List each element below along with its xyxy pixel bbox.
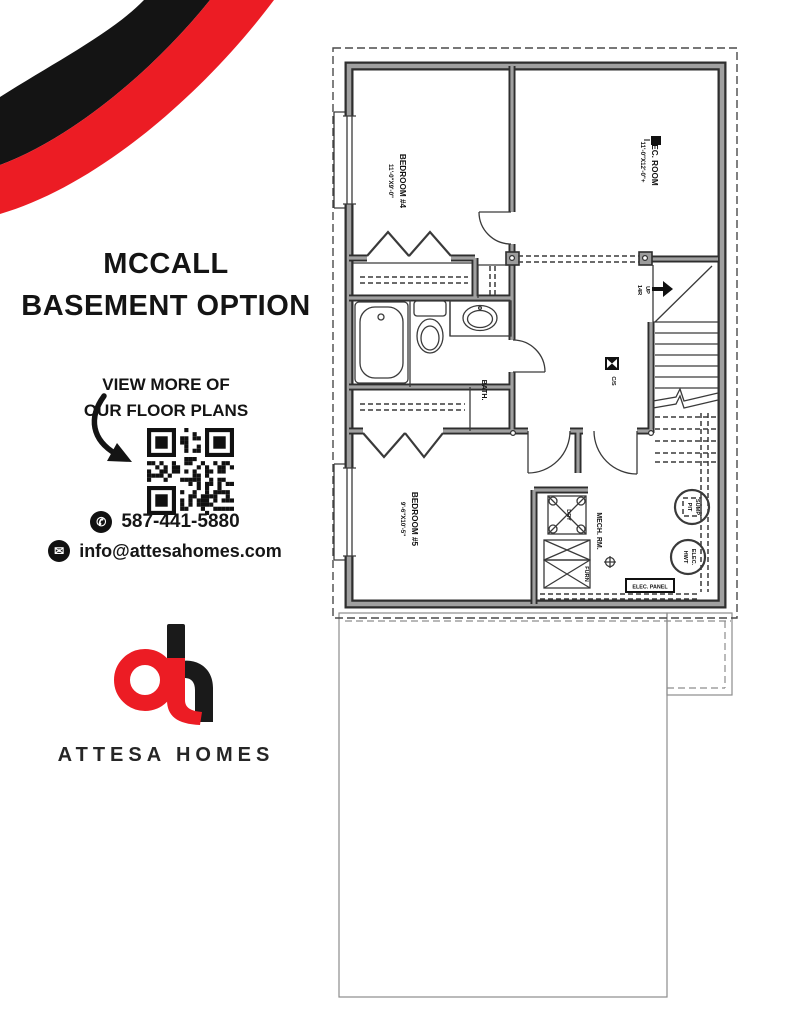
- room-labels: BEDROOM #4 11'-0"X9'-0" REC. ROOM 11'-0"…: [387, 138, 659, 549]
- bathtub: [355, 302, 408, 383]
- rec-room-dims: 11'-0"X12'-0"+: [639, 142, 646, 183]
- stairs-up-label: UP: [644, 286, 650, 294]
- header-beam-dashed: [518, 256, 639, 262]
- window-bedroom4: [343, 116, 356, 204]
- sump-label-2: PIT: [686, 503, 692, 512]
- bathroom: [355, 300, 545, 387]
- sump-pit: SUMP PIT: [675, 490, 709, 524]
- smoke-co-detector: C/S: [605, 357, 619, 386]
- bedroom5-name: BEDROOM #5: [410, 492, 419, 547]
- info-column: MCCALL BASEMENT OPTION VIEW MORE OF OUR …: [0, 0, 330, 1024]
- page-title: MCCALL BASEMENT OPTION: [10, 243, 322, 327]
- bedroom4-dims: 11'-0"X9'-0": [387, 164, 394, 198]
- window-bedroom5: [343, 468, 356, 556]
- toilet: [414, 301, 446, 353]
- elec-panel-label: ELEC. PANEL: [632, 585, 668, 591]
- rec-room-name: REC. ROOM: [650, 138, 659, 185]
- garage-outline: [339, 613, 732, 997]
- phone-number: 587-441-5880: [121, 511, 239, 533]
- title-line-1: MCCALL: [10, 243, 322, 285]
- bedroom5-closet: [360, 387, 470, 457]
- mech-door: [594, 431, 637, 474]
- bath-door: [513, 340, 545, 372]
- dryer-label: DRY: [565, 509, 571, 521]
- furnace: FURN: [544, 540, 590, 588]
- hwt-label-1: ELEC.: [690, 549, 696, 566]
- detector-label: C/S: [610, 376, 616, 386]
- email-address: info@attesahomes.com: [79, 541, 282, 562]
- arrow-curved-icon: [80, 388, 150, 473]
- email-icon: ✉: [48, 540, 70, 562]
- bedroom5-dims: 9'-6"X10'-5": [399, 502, 406, 536]
- brand-logo: [105, 618, 263, 736]
- bedroom4-door: [479, 212, 511, 244]
- qr-code: [147, 428, 234, 515]
- cta-text: VIEW MORE OF OUR FLOOR PLANS: [30, 372, 302, 423]
- brand-name: ATTESA HOMES: [10, 744, 322, 767]
- dryer: DRY: [548, 496, 586, 534]
- title-line-2: BASEMENT OPTION: [10, 285, 322, 327]
- phone-icon: ✆: [90, 511, 112, 533]
- hwt-label-2: HWT: [682, 551, 688, 564]
- bedroom4-name: BEDROOM #4: [398, 154, 407, 209]
- stairs-risers-label: 14R: [636, 285, 642, 295]
- phone-link[interactable]: ✆ 587-441-5880: [0, 511, 330, 533]
- mech-name: MECH. RM.: [595, 512, 602, 549]
- vanity-sink: [450, 301, 511, 336]
- stairs-up-arrow-icon: [652, 281, 673, 297]
- furnace-label: FURN: [583, 566, 589, 582]
- cta-line-2: OUR FLOOR PLANS: [30, 398, 302, 424]
- hot-water-tank: ELEC. HWT: [671, 540, 705, 574]
- floor-drain: [604, 556, 616, 568]
- bedroom4-closet: [353, 232, 512, 298]
- sump-label-1: SUMP: [694, 499, 700, 515]
- email-link[interactable]: ✉ info@attesahomes.com: [0, 540, 330, 562]
- bath-name: BATH.: [480, 380, 487, 401]
- mech-room-equipment: DRY FURN SUMP PIT ELEC. HWT ELEC. PANEL: [540, 490, 709, 599]
- cta-line-1: VIEW MORE OF: [30, 372, 302, 398]
- electrical-panel: ELEC. PANEL: [626, 579, 674, 592]
- bedroom5-door: [528, 431, 570, 473]
